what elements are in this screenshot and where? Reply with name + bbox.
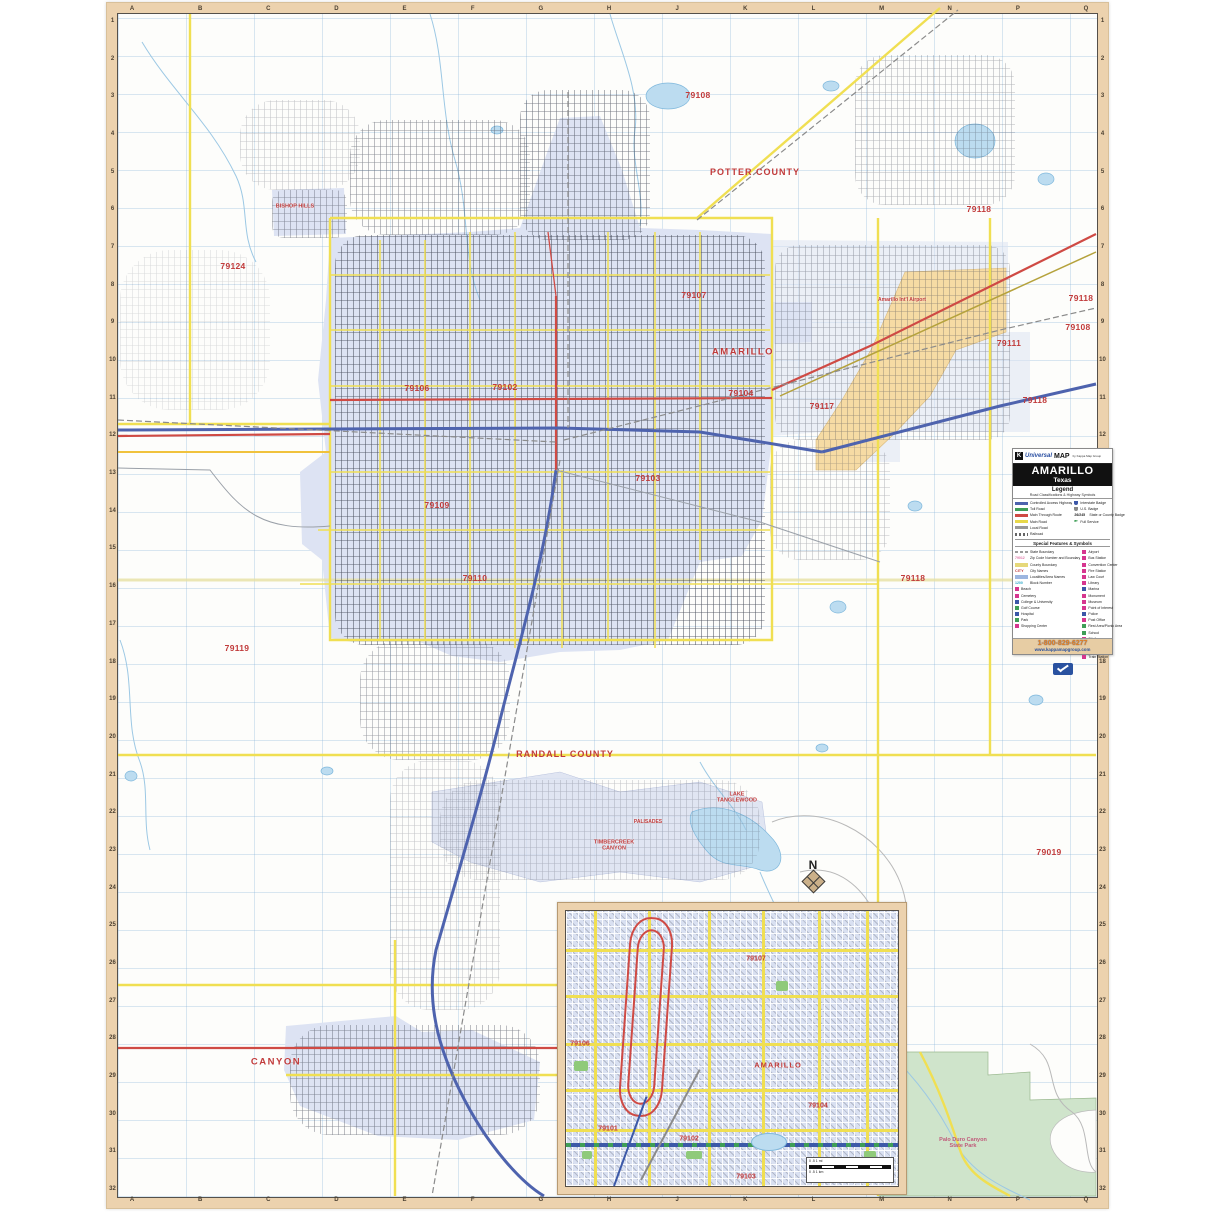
legend-swatch-icon — [1015, 508, 1028, 511]
place-label: AMARILLO — [712, 347, 774, 358]
legend-swatch-icon — [1015, 533, 1028, 536]
place-label: PALISADES — [634, 819, 662, 825]
grid-number: 22 — [109, 809, 116, 815]
grid-number: 28 — [1099, 1035, 1106, 1041]
legend-label: Airport — [1088, 550, 1098, 554]
inset-zip-label: 79106 — [570, 1041, 589, 1048]
street-texture — [120, 250, 270, 410]
legend-swatch-icon — [1015, 594, 1019, 598]
scale-km: 0 .5 1 km — [809, 1170, 891, 1174]
legend-swatch-icon — [1015, 526, 1028, 529]
zip-label: 79103 — [635, 473, 660, 483]
grid-number: 17 — [109, 621, 116, 627]
legend-label: Railroad — [1030, 532, 1043, 536]
legend-label: City Names — [1030, 569, 1048, 573]
inset-park — [582, 1151, 592, 1159]
legend-label: Local Road — [1030, 526, 1048, 530]
grid-number: 11 — [109, 395, 115, 401]
grid-letter: F — [471, 6, 475, 12]
kappa-k-icon: K — [1015, 452, 1023, 460]
north-arrow: N — [796, 858, 830, 890]
grid-letter: N — [948, 6, 952, 12]
grid-number: 3 — [111, 93, 114, 99]
legend-swatch-icon: CITY — [1015, 569, 1028, 573]
grid-number: 31 — [1099, 1148, 1106, 1154]
zip-label: 79118 — [1069, 293, 1094, 303]
legend-label: Museum — [1088, 600, 1101, 604]
legend-swatch-icon: 26/245 — [1074, 513, 1087, 517]
legend-label: Hospital — [1021, 612, 1034, 616]
zip-label: 79106 — [404, 383, 429, 393]
map-subtitle: Texas — [1013, 477, 1112, 484]
legend-label: Park — [1021, 618, 1028, 622]
legend-label: Interstate Badge — [1080, 501, 1106, 505]
grid-number: 8 — [111, 282, 114, 288]
inset-zip-label: 79107 — [746, 956, 765, 963]
legend-swatch-icon — [1082, 618, 1086, 622]
legend-swatch-icon — [1015, 502, 1028, 505]
grid-letter: M — [879, 1197, 884, 1203]
grid-letter: D — [334, 1197, 338, 1203]
publisher-logo: K Universal MAP by Kappa Map Group — [1013, 449, 1112, 464]
grid-number: 14 — [109, 508, 116, 514]
grid-letter: C — [266, 6, 270, 12]
legend-label: Controlled Access Highway — [1030, 501, 1072, 505]
legend-label: Monument — [1088, 594, 1105, 598]
legend-swatch-icon — [1015, 575, 1028, 579]
grid-letter: P — [1016, 1197, 1020, 1203]
legend-label: Fire Station — [1088, 569, 1106, 573]
downtown-inset-canvas: 7910779106AMARILLO791047910179102791030 … — [565, 910, 899, 1187]
zip-label: 79107 — [681, 290, 706, 300]
inset-yellow-road — [566, 949, 898, 952]
street-texture — [855, 55, 1015, 205]
grid-number: 26 — [1099, 960, 1106, 966]
legend-label: Cemetery — [1021, 594, 1036, 598]
place-label: BISHOP HILLS — [269, 204, 321, 210]
grid-letter: F — [471, 1197, 475, 1203]
grid-number: 21 — [1099, 772, 1106, 778]
grid-number: 20 — [109, 734, 116, 740]
grid-number: 27 — [109, 998, 116, 1004]
street-texture — [350, 120, 530, 235]
legend-swatch-icon — [1015, 612, 1019, 616]
grid-letter: N — [948, 1197, 952, 1203]
grid-number: 25 — [109, 922, 116, 928]
grid-number: 19 — [109, 696, 116, 702]
legend-label: Beach — [1021, 587, 1031, 591]
downtown-inset-map: 7910779106AMARILLO791047910179102791030 … — [557, 902, 907, 1195]
legend-swatch-icon — [1015, 600, 1019, 604]
legend-label: Point of Interest — [1088, 606, 1113, 610]
legend-label: U.S. Badge — [1080, 507, 1098, 511]
legend-swatch-icon — [1082, 600, 1086, 604]
compass-rose-icon — [801, 869, 825, 893]
street-texture — [290, 1025, 540, 1135]
place-label: Amarillo Int'l Airport — [878, 297, 926, 303]
grid-number: 24 — [1099, 885, 1106, 891]
street-texture — [360, 640, 510, 760]
legend-label: Police — [1088, 612, 1098, 616]
legend-row: Shopping Center — [1015, 623, 1080, 629]
scale-bar-icon — [809, 1165, 891, 1169]
grid-number: 4 — [1101, 131, 1104, 137]
grid-letter: G — [539, 6, 544, 12]
grid-number: 28 — [109, 1035, 116, 1041]
zip-label: 79109 — [424, 500, 449, 510]
grid-number: 13 — [109, 470, 116, 476]
zip-label: 79108 — [1065, 322, 1090, 332]
grid-number: 3 — [1101, 93, 1104, 99]
grid-letter: E — [403, 1197, 407, 1203]
legend-swatch-icon — [1015, 618, 1019, 622]
inset-yellow-road — [566, 995, 898, 998]
zip-label: 79019 — [1036, 847, 1061, 857]
brand-universal: Universal — [1025, 453, 1052, 459]
zip-label: 79104 — [728, 388, 753, 398]
legend-label: Block Number — [1030, 581, 1052, 585]
grid-number: 29 — [109, 1073, 116, 1079]
legend-swatch-icon — [1082, 587, 1086, 591]
legend-label: Law Court — [1088, 575, 1104, 579]
inset-yellow-road — [566, 1089, 898, 1092]
grid-number: 29 — [1099, 1073, 1106, 1079]
grid-number: 9 — [1101, 319, 1104, 325]
grid-number: 27 — [1099, 998, 1106, 1004]
grid-number: 16 — [109, 583, 116, 589]
grid-letter: D — [334, 6, 338, 12]
grid-number: 20 — [1099, 734, 1106, 740]
inset-park — [776, 981, 788, 991]
grid-number: 5 — [1101, 169, 1104, 175]
inset-yellow-road — [566, 1043, 898, 1046]
legend-swatch-icon: 79012 — [1015, 556, 1028, 560]
place-label: CANYON — [251, 1057, 301, 1068]
grid-letter: A — [130, 6, 134, 12]
publisher-phone: 1-800-829-6277 — [1013, 640, 1112, 647]
grid-letter: M — [879, 6, 884, 12]
grid-number: 23 — [1099, 847, 1106, 853]
grid-number: 7 — [111, 244, 114, 250]
zip-label: 79102 — [492, 382, 517, 392]
publisher-url: www.kappamapgroup.com — [1013, 647, 1112, 652]
scale-mi: 0 .5 1 mi — [809, 1159, 891, 1163]
zip-label: 79119 — [225, 643, 250, 653]
grid-number: 1 — [1101, 18, 1104, 24]
grid-number: 30 — [1099, 1111, 1106, 1117]
grid-number: 12 — [109, 432, 116, 438]
place-label: LAKE TANGLEWOOD — [711, 793, 763, 804]
legend-label: Full Service — [1080, 520, 1098, 524]
legend-label: Main Road — [1030, 520, 1047, 524]
grid-number: 6 — [111, 206, 114, 212]
legend-footer: 1-800-829-6277 www.kappamapgroup.com — [1013, 638, 1112, 654]
place-label: TIMBERCREEK CANYON — [588, 841, 640, 852]
kappa-swoosh-icon — [1053, 663, 1073, 675]
map-title: AMARILLO — [1013, 466, 1112, 477]
street-texture — [770, 440, 890, 560]
grid-letter: Q — [1084, 1197, 1089, 1203]
legend-swatch-icon — [1082, 631, 1086, 635]
legend-label: School — [1088, 631, 1099, 635]
grid-number: 1 — [111, 18, 114, 24]
map-product-photo: AABBCCDDEEFFGGHHJJKKLLMMNNPPQQ 112233445… — [0, 0, 1214, 1214]
grid-letter: C — [266, 1197, 270, 1203]
legend-swatch-icon — [1074, 520, 1078, 524]
legend-label: Post Office — [1088, 618, 1105, 622]
grid-number: 8 — [1101, 282, 1104, 288]
legend-panel: K Universal MAP by Kappa Map Group AMARI… — [1012, 448, 1113, 655]
grid-number: 15 — [109, 545, 116, 551]
special-features-heading: Special Features & Symbols — [1015, 539, 1110, 547]
inset-park — [574, 1061, 588, 1071]
grid-number: 10 — [1099, 357, 1106, 363]
inset-interstate-40 — [566, 1143, 898, 1147]
grid-number: 23 — [109, 847, 116, 853]
legend-swatch-icon: 1200 — [1015, 581, 1028, 585]
legend-row: Railroad — [1015, 531, 1072, 537]
grid-letter: Q — [1084, 6, 1089, 12]
grid-letter: J — [675, 1197, 678, 1203]
grid-number: 18 — [109, 659, 116, 665]
legend-swatch-icon — [1015, 624, 1019, 628]
grid-letter: H — [607, 6, 611, 12]
brand-byline: by Kappa Map Group — [1073, 454, 1102, 458]
legend-label: Train Station — [1088, 655, 1108, 659]
grid-number: 2 — [1101, 56, 1104, 62]
place-label: Palo Duro Canyon State Park — [936, 1137, 990, 1149]
legend-label: Convention Center — [1088, 563, 1117, 567]
brand-map: MAP — [1054, 453, 1070, 460]
zip-label: 79111 — [997, 338, 1021, 348]
legend-swatch-icon — [1015, 587, 1019, 591]
grid-number: 32 — [109, 1186, 116, 1192]
grid-number: 32 — [1099, 1186, 1106, 1192]
legend-label: Shopping Center — [1021, 624, 1047, 628]
grid-letter: J — [675, 6, 678, 12]
zip-label: 79118 — [901, 573, 926, 583]
grid-number: 5 — [111, 169, 114, 175]
grid-letter: E — [403, 6, 407, 12]
inset-scale-bar: 0 .5 1 mi0 .5 1 km — [806, 1157, 894, 1183]
legend-swatch-icon — [1082, 655, 1086, 659]
inset-zip-label: 79104 — [808, 1103, 827, 1110]
legend-swatch-icon — [1082, 575, 1086, 579]
grid-letter: B — [198, 1197, 202, 1203]
legend-swatch-icon — [1082, 550, 1086, 554]
county-label: POTTER COUNTY — [710, 167, 800, 177]
grid-number: 19 — [1099, 696, 1106, 702]
legend-label: Rest Area/Picnic Area — [1088, 624, 1122, 628]
grid-number: 22 — [1099, 809, 1106, 815]
street-texture — [240, 100, 360, 190]
grid-letter: K — [743, 1197, 747, 1203]
legend-swatch-icon — [1082, 556, 1086, 560]
legend-swatch-icon — [1082, 569, 1086, 573]
legend-swatch-icon — [1015, 520, 1028, 523]
legend-swatch-icon — [1074, 501, 1078, 505]
grid-letter: H — [607, 1197, 611, 1203]
grid-number: 12 — [1099, 432, 1106, 438]
grid-letter: L — [812, 6, 816, 12]
grid-number: 11 — [1099, 395, 1105, 401]
grid-number: 30 — [109, 1111, 116, 1117]
legend-label: College & University — [1021, 600, 1053, 604]
legend-swatch-icon — [1082, 612, 1086, 616]
legend-label: Zip Code Number and Boundary — [1030, 556, 1080, 560]
legend-swatch-icon — [1015, 606, 1019, 610]
map-title-block: AMARILLO Texas — [1013, 464, 1112, 486]
inset-zip-label: 79103 — [736, 1174, 755, 1181]
grid-number: 7 — [1101, 244, 1104, 250]
grid-letter: K — [743, 6, 747, 12]
grid-letter: B — [198, 6, 202, 12]
legend-swatch-icon — [1082, 594, 1086, 598]
grid-number: 6 — [1101, 206, 1104, 212]
grid-number: 31 — [109, 1148, 116, 1154]
county-label: RANDALL COUNTY — [516, 749, 614, 759]
grid-letter: L — [812, 1197, 816, 1203]
legend-label: County Boundary — [1030, 563, 1057, 567]
inset-zip-label: 79102 — [679, 1136, 698, 1143]
legend-row: Full Service — [1074, 519, 1124, 525]
legend-swatch-icon — [1082, 563, 1086, 567]
legend-label: Library — [1088, 581, 1099, 585]
legend-label: Bus Station — [1088, 556, 1106, 560]
legend-swatch-icon — [1082, 606, 1086, 610]
zip-label: 79108 — [685, 90, 710, 100]
grid-letter: G — [539, 1197, 544, 1203]
legend-swatch-icon — [1015, 551, 1028, 553]
zip-label: 79124 — [220, 261, 245, 271]
legend-swatch-icon — [1015, 514, 1028, 517]
street-texture — [520, 90, 650, 240]
grid-letter: P — [1016, 6, 1020, 12]
legend-label: State Boundary — [1030, 550, 1054, 554]
zip-label: 79110 — [463, 573, 488, 583]
inset-pond — [751, 1133, 787, 1151]
legend-swatch-icon — [1082, 581, 1086, 585]
legend-label: Golf Course — [1021, 606, 1040, 610]
inset-park — [686, 1151, 702, 1159]
legend-label: Localities/Area Names — [1030, 575, 1065, 579]
legend-row: Train Station — [1082, 654, 1122, 660]
grid-number: 26 — [109, 960, 116, 966]
grid-number: 24 — [109, 885, 116, 891]
road-class-section: Controlled Access HighwayToll RoadMain T… — [1013, 499, 1112, 538]
grid-number: 4 — [111, 131, 114, 137]
legend-swatch-icon — [1074, 507, 1078, 511]
legend-label: Toll Road — [1030, 507, 1045, 511]
zip-label: 79118 — [967, 204, 992, 214]
grid-number: 9 — [111, 319, 114, 325]
legend-label: Main Through Route — [1030, 513, 1062, 517]
legend-label: Marina — [1088, 587, 1099, 591]
inset-zip-label: 79101 — [598, 1126, 617, 1133]
grid-letter: A — [130, 1197, 134, 1203]
legend-label: State or County Badge — [1089, 513, 1124, 517]
zip-label: 79117 — [810, 401, 835, 411]
legend-swatch-icon — [1082, 624, 1086, 628]
grid-number: 21 — [109, 772, 116, 778]
street-texture — [272, 190, 347, 238]
grid-number: 10 — [109, 357, 116, 363]
legend-swatch-icon — [1015, 563, 1028, 567]
inset-city-label: AMARILLO — [754, 1061, 802, 1070]
grid-number: 2 — [111, 56, 114, 62]
grid-number: 25 — [1099, 922, 1106, 928]
zip-label: 79118 — [1023, 395, 1048, 405]
